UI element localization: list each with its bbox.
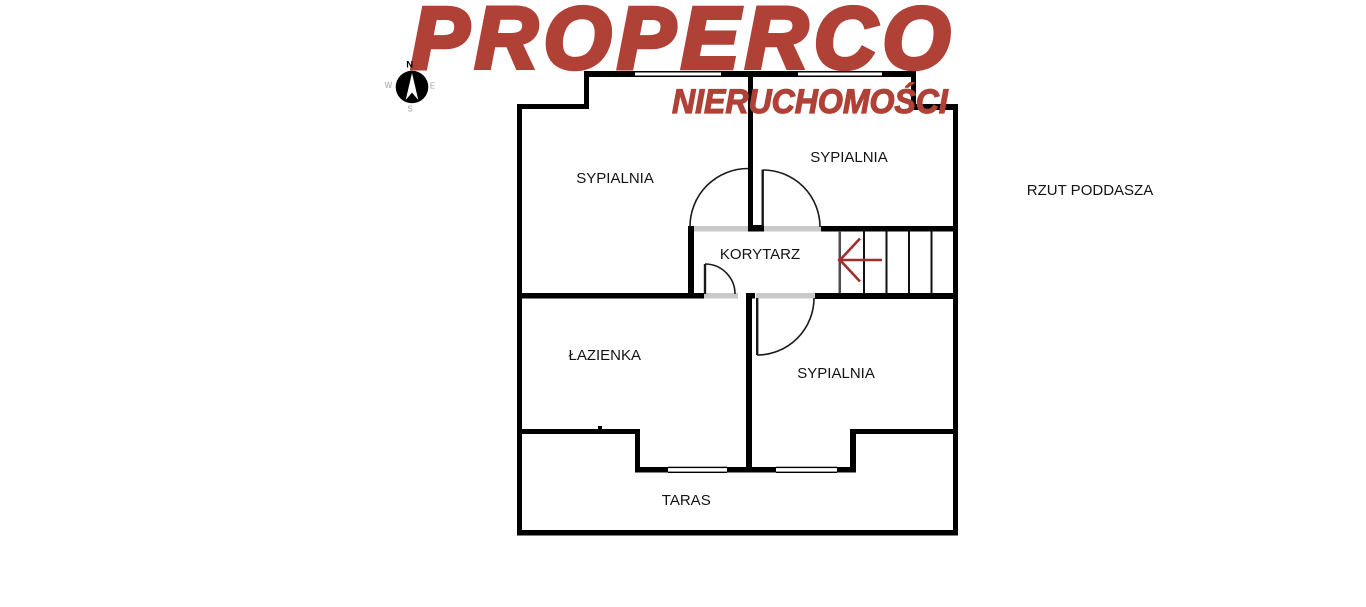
svg-text:W: W (385, 81, 393, 90)
svg-text:E: E (430, 82, 435, 91)
svg-text:N: N (406, 59, 413, 70)
svg-text:S: S (407, 104, 412, 113)
